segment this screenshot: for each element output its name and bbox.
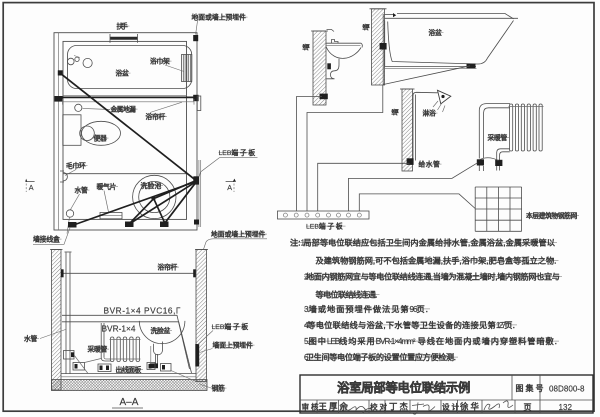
svg-text:设计: 设计 [442,402,461,412]
svg-text:校对: 校对 [370,402,389,412]
svg-text:图集号: 图集号 [516,383,546,393]
svg-text:丁杰: 丁杰 [389,402,410,412]
svg-text:墙: 墙 [302,42,311,51]
svg-text:墙: 墙 [362,22,371,31]
svg-text:A–A: A–A [120,397,139,408]
svg-text:A: A [227,183,232,192]
svg-text:08D800-8: 08D800-8 [549,384,585,394]
svg-text:页: 页 [524,403,534,412]
svg-text:A: A [29,183,34,192]
svg-text:132: 132 [559,402,573,412]
svg-text:徐华: 徐华 [460,402,481,412]
svg-text:BVR-1×4 PVC16,Γ: BVR-1×4 PVC16,Γ [104,306,181,316]
svg-text:墙: 墙 [391,107,400,116]
svg-text:BVR-1×4: BVR-1×4 [102,324,136,334]
